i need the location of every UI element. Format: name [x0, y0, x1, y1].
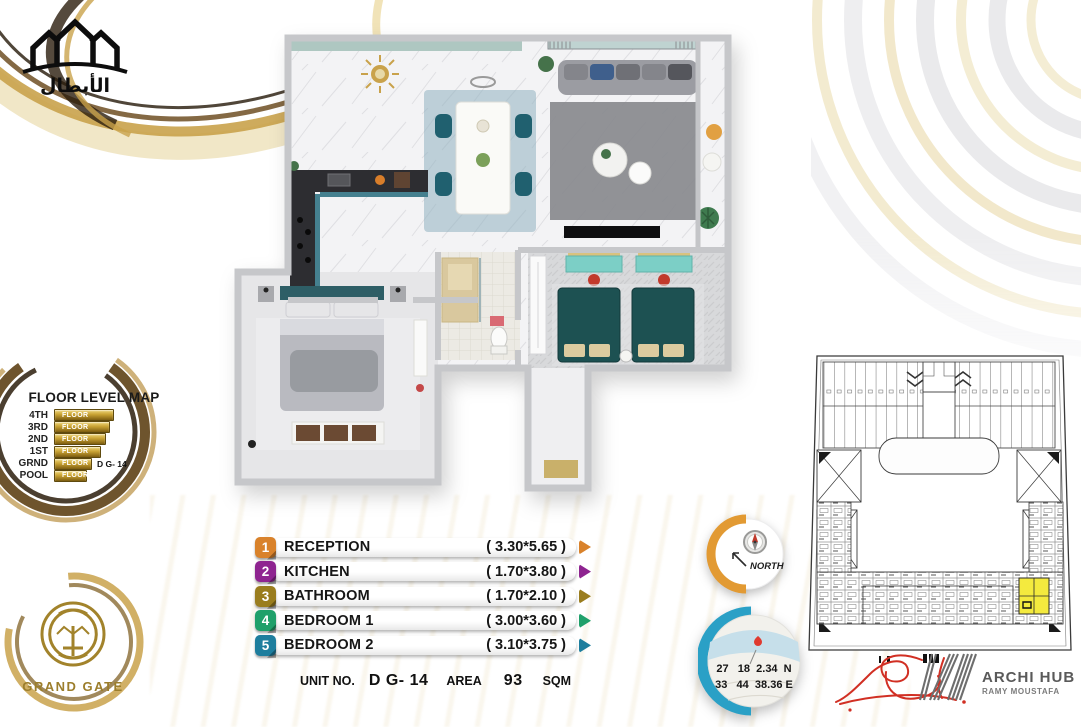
floor-bar-text: FLOOR: [55, 412, 89, 419]
legend-row-bathroom: 3 BATHROOM ( 1.70*2.10 ): [255, 586, 591, 606]
archi-hub-subname: RAMY MOUSTAFA: [982, 687, 1075, 696]
room-legend: 1 RECEPTION ( 3.30*5.65 ) 2 KITCHEN ( 1.…: [255, 537, 591, 655]
alabtal-houses-icon: [19, 16, 131, 74]
room-number: 2: [262, 564, 270, 579]
parking-wing-right: [955, 362, 1055, 448]
tv-unit: [564, 226, 660, 238]
legend-pill: BATHROOM ( 1.70*2.10 ): [270, 587, 576, 606]
area-value: 93: [504, 672, 523, 690]
archi-hub-brand: ARCHI HUB RAMY MOUSTAFA: [916, 650, 1075, 702]
floor-level-row: 1ST FLOOR: [6, 446, 206, 457]
room-number-badge: 2: [255, 561, 276, 582]
room-dimensions: ( 1.70*3.80 ): [486, 564, 566, 580]
area-label: AREA: [446, 674, 481, 688]
plant: [538, 56, 554, 72]
room-name: BEDROOM 1: [284, 613, 374, 629]
arrow-icon: [579, 589, 591, 604]
room-name: RECEPTION: [284, 539, 370, 555]
room-dimensions: ( 3.10*3.75 ): [486, 637, 566, 653]
coordinate-lat: 27 18 2.34 N: [716, 663, 791, 675]
highlighted-unit: [1019, 578, 1049, 614]
floor-plan-render: [228, 20, 736, 516]
central-pool: [879, 438, 999, 474]
door-mat: [544, 460, 578, 478]
sunburst-mirror: [361, 55, 399, 93]
coffee-table: [593, 143, 627, 177]
legend-row-bedroom2: 5 BEDROOM 2 ( 3.10*3.75 ): [255, 635, 591, 655]
room-number: 5: [262, 638, 270, 653]
room-dimensions: ( 3.30*5.65 ): [486, 539, 566, 555]
floor-label: 4TH: [6, 410, 54, 421]
floor-level-row: GRND FLOOR D G- 14: [6, 458, 206, 469]
coordinate-lng: 33 44 38.36 E: [715, 679, 793, 691]
unit-no-label: UNIT NO.: [300, 674, 355, 688]
floor-level-row: POOL FLOOR: [6, 470, 206, 481]
grand-gate-name: GRAND GATE: [18, 679, 128, 694]
floor-bar: FLOOR: [54, 433, 106, 445]
grand-gate-emblem-icon: [31, 592, 115, 676]
room-number-badge: 5: [255, 635, 276, 656]
compass-card: NORTH: [706, 512, 790, 596]
legend-pill: BEDROOM 2 ( 3.10*3.75 ): [270, 636, 576, 655]
room-number: 4: [262, 613, 270, 628]
floor-level-rows: 4TH FLOOR 3RD FLOOR 2ND FLOOR 1ST FLOOR …: [6, 410, 206, 481]
north-label: NORTH: [750, 561, 785, 572]
room-name: BATHROOM: [284, 588, 370, 604]
legend-row-reception: 1 RECEPTION ( 3.30*5.65 ): [255, 537, 591, 557]
room-dimensions: ( 1.70*2.10 ): [486, 588, 566, 604]
poster-canvas: الأبطال FLOOR LEVEL MAP 4TH FLOOR 3RD FL…: [0, 0, 1081, 727]
floor-level-row: 2ND FLOOR: [6, 434, 206, 445]
arrow-icon: [579, 638, 591, 653]
arrow-icon: [579, 564, 591, 579]
unit-no-value: D G- 14: [369, 672, 429, 690]
floor-label: 1ST: [6, 446, 54, 457]
room-number-badge: 3: [255, 586, 276, 607]
unit-info-line: UNIT NO. D G- 14 AREA 93 SQM: [300, 672, 571, 690]
floor-level-row: 3RD FLOOR: [6, 422, 206, 433]
grand-gate-brand: GRAND GATE: [18, 592, 128, 694]
area-unit: SQM: [543, 674, 571, 688]
room-number: 1: [262, 540, 270, 555]
site-master-plan: [803, 350, 1077, 666]
floor-label: GRND: [6, 458, 54, 469]
coordinates-card: 27 18 2.34 N 33 44 38.36 E: [698, 606, 808, 716]
legend-pill: BEDROOM 1 ( 3.00*3.60 ): [270, 611, 576, 630]
room-name: KITCHEN: [284, 564, 350, 580]
alabtal-name: الأبطال: [10, 75, 140, 97]
floor-level-map-title: FLOOR LEVEL MAP: [14, 390, 174, 405]
legend-row-bedroom1: 4 BEDROOM 1 ( 3.00*3.60 ): [255, 611, 591, 631]
floor-label: 3RD: [6, 422, 54, 433]
floor-bar-text: FLOOR: [55, 424, 89, 431]
floor-bar: FLOOR: [54, 470, 87, 482]
room-number: 3: [262, 589, 270, 604]
floor-bar: FLOOR: [54, 446, 101, 458]
alabtal-logo: الأبطال: [10, 16, 140, 97]
room-number-badge: 1: [255, 537, 276, 558]
legend-pill: KITCHEN ( 1.70*3.80 ): [270, 562, 576, 581]
floor-label: POOL: [6, 470, 54, 481]
floor-bar: FLOOR: [54, 458, 92, 470]
floor-note: D G- 14: [97, 459, 127, 469]
parking-wing-left: [823, 362, 923, 448]
office-table: [703, 153, 721, 171]
compass-icon: [744, 531, 766, 553]
legend-row-kitchen: 2 KITCHEN ( 1.70*3.80 ): [255, 562, 591, 582]
floor-bar-text: FLOOR: [55, 436, 89, 443]
floor-bar-text: FLOOR: [55, 472, 89, 479]
room-name: BEDROOM 2: [284, 637, 374, 653]
office-chair: [706, 124, 722, 140]
floor-bar-text: FLOOR: [55, 448, 89, 455]
sofa-cushions: [564, 64, 692, 80]
arrow-icon: [579, 540, 591, 555]
side-table: [629, 162, 651, 184]
legend-pill: RECEPTION ( 3.30*5.65 ): [270, 538, 576, 557]
floor-label: 2ND: [6, 434, 54, 445]
entrance-block: [923, 362, 955, 392]
floor-bar-text: FLOOR: [55, 460, 89, 467]
arrow-icon: [579, 613, 591, 628]
archi-hub-name: ARCHI HUB: [982, 669, 1075, 686]
room-dimensions: ( 3.00*3.60 ): [486, 613, 566, 629]
floor-bar: FLOOR: [54, 421, 110, 433]
floor-level-row: 4TH FLOOR: [6, 410, 206, 421]
room-number-badge: 4: [255, 610, 276, 631]
archi-hub-logo-icon: [916, 650, 978, 702]
floor-level-map: FLOOR LEVEL MAP 4TH FLOOR 3RD FLOOR 2ND …: [6, 390, 206, 483]
floor-bar: FLOOR: [54, 409, 114, 421]
